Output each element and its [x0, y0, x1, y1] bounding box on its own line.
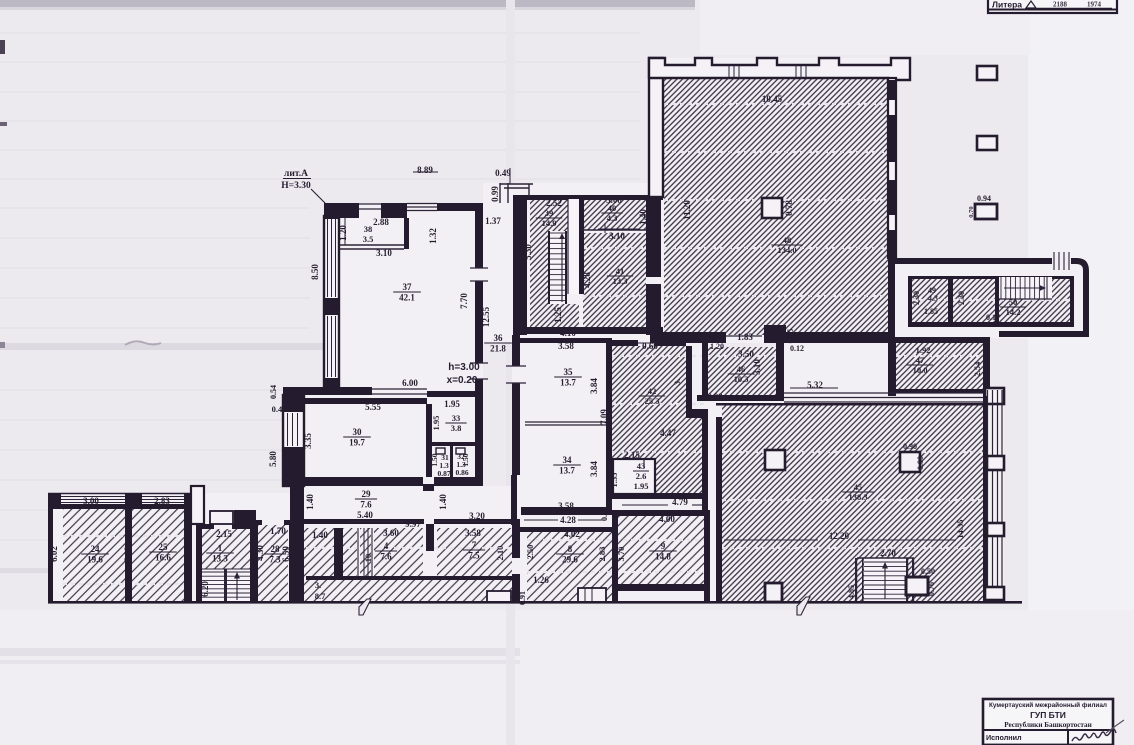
svg-text:19.6: 19.6 [87, 555, 103, 565]
svg-text:14.8: 14.8 [655, 552, 671, 562]
svg-text:0.49: 0.49 [495, 168, 511, 178]
svg-text:9: 9 [661, 541, 666, 551]
svg-text:7.09: 7.09 [599, 409, 609, 425]
svg-text:1.20: 1.20 [710, 342, 724, 351]
svg-text:h=3.00: h=3.00 [448, 362, 480, 373]
svg-text:Республики Башкортостан: Республики Башкортостан [1004, 721, 1092, 729]
svg-text:3.58: 3.58 [465, 528, 481, 538]
svg-text:0.78: 0.78 [784, 200, 794, 216]
svg-text:43: 43 [637, 461, 646, 471]
svg-text:39: 39 [545, 208, 554, 218]
svg-text:25.3: 25.3 [645, 396, 660, 406]
svg-text:8.7: 8.7 [315, 591, 326, 601]
svg-text:5.55: 5.55 [365, 402, 381, 412]
svg-text:0.50: 0.50 [921, 567, 935, 576]
svg-text:3.50: 3.50 [738, 349, 754, 359]
svg-text:4.28: 4.28 [582, 272, 592, 288]
svg-text:40: 40 [608, 203, 617, 213]
svg-text:3.5: 3.5 [363, 234, 374, 244]
svg-text:36: 36 [494, 333, 504, 343]
svg-text:4.3: 4.3 [928, 294, 938, 303]
svg-text:2.6: 2.6 [636, 471, 647, 481]
svg-text:3.58: 3.58 [558, 501, 574, 511]
svg-text:13.7: 13.7 [560, 378, 576, 388]
svg-text:Исполнил: Исполнил [986, 733, 1022, 742]
svg-text:25: 25 [159, 542, 169, 552]
svg-text:0.76: 0.76 [927, 582, 936, 596]
svg-text:0.99: 0.99 [490, 186, 500, 202]
svg-text:134.0: 134.0 [777, 245, 796, 255]
svg-text:3.8: 3.8 [451, 423, 462, 433]
svg-text:3.60: 3.60 [383, 528, 399, 538]
svg-text:42: 42 [648, 386, 657, 396]
svg-text:21.8: 21.8 [490, 344, 506, 354]
svg-text:2.54: 2.54 [972, 361, 982, 377]
svg-text:46: 46 [737, 364, 746, 374]
svg-text:3.10: 3.10 [752, 359, 762, 375]
svg-text:1.95: 1.95 [634, 481, 649, 491]
svg-text:3.10: 3.10 [376, 248, 392, 258]
svg-text:16.6: 16.6 [155, 553, 171, 563]
svg-text:34: 34 [563, 455, 573, 465]
svg-text:7.5: 7.5 [468, 551, 480, 561]
svg-text:33: 33 [452, 413, 461, 423]
svg-text:1.20: 1.20 [338, 225, 348, 241]
svg-text:5.40: 5.40 [357, 510, 373, 520]
svg-text:3.84: 3.84 [589, 378, 599, 394]
svg-text:5.83: 5.83 [123, 546, 133, 562]
svg-text:0.70: 0.70 [968, 206, 975, 217]
svg-text:1.32: 1.32 [428, 228, 438, 244]
svg-text:6.00: 6.00 [402, 378, 418, 388]
svg-text:7.70: 7.70 [459, 293, 469, 309]
svg-text:10.0: 10.0 [913, 365, 928, 375]
svg-text:7.6: 7.6 [360, 500, 372, 510]
svg-text:14.2: 14.2 [1006, 307, 1021, 317]
svg-text:7: 7 [472, 540, 477, 550]
svg-text:1.83: 1.83 [737, 332, 753, 342]
svg-text:4.10: 4.10 [560, 328, 576, 338]
svg-text:3.10: 3.10 [609, 231, 625, 241]
svg-text:6.59: 6.59 [281, 546, 291, 562]
svg-text:1: 1 [218, 543, 223, 553]
svg-text:0.68: 0.68 [289, 511, 298, 525]
svg-text:8.89: 8.89 [417, 165, 433, 175]
svg-text:4.3: 4.3 [607, 213, 618, 223]
svg-text:8.50: 8.50 [310, 264, 320, 280]
svg-text:48: 48 [783, 235, 792, 245]
svg-text:1.92: 1.92 [916, 345, 931, 355]
svg-text:35: 35 [564, 367, 574, 377]
svg-text:1974: 1974 [1087, 1, 1102, 9]
svg-text:0.40: 0.40 [272, 404, 287, 414]
svg-text:1.40: 1.40 [312, 530, 328, 540]
svg-text:37: 37 [403, 282, 413, 292]
svg-text:24: 24 [91, 544, 101, 554]
svg-text:Кумертауский межрайонный филиа: Кумертауский межрайонный филиал [989, 701, 1107, 709]
svg-text:0.98: 0.98 [708, 391, 723, 401]
svg-text:3.20: 3.20 [469, 511, 485, 521]
svg-text:0.17: 0.17 [986, 313, 1000, 322]
svg-text:12.55: 12.55 [481, 306, 491, 327]
svg-text:4.47: 4.47 [660, 428, 676, 438]
svg-text:2.15: 2.15 [216, 529, 232, 539]
svg-text:13.7: 13.7 [559, 466, 575, 476]
svg-text:7.6: 7.6 [380, 552, 392, 562]
svg-text:x=0.20: x=0.20 [447, 375, 478, 386]
svg-text:13.3: 13.3 [613, 276, 628, 286]
svg-text:17: 17 [684, 377, 694, 386]
svg-text:7.3: 7.3 [269, 555, 281, 565]
svg-text:2.30: 2.30 [912, 291, 921, 305]
svg-text:19.7: 19.7 [349, 438, 365, 448]
svg-text:11.20: 11.20 [682, 200, 692, 220]
svg-text:4.28: 4.28 [560, 515, 576, 525]
svg-text:4.79: 4.79 [672, 497, 688, 507]
svg-text:9.97: 9.97 [405, 519, 421, 529]
svg-text:14.35: 14.35 [955, 519, 965, 538]
svg-text:13.3: 13.3 [212, 554, 228, 564]
svg-text:1.95: 1.95 [431, 416, 441, 431]
svg-text:5.32: 5.32 [807, 380, 823, 390]
svg-text:Н=3.30: Н=3.30 [281, 181, 311, 191]
svg-text:1.37: 1.37 [485, 216, 501, 226]
svg-text:3.58: 3.58 [558, 341, 574, 351]
svg-text:2.10: 2.10 [495, 546, 505, 561]
svg-text:0.87: 0.87 [437, 469, 450, 478]
svg-text:ГУП БТИ: ГУП БТИ [1030, 710, 1066, 720]
svg-text:45: 45 [854, 482, 863, 492]
svg-text:47: 47 [916, 355, 925, 365]
svg-text:3.84: 3.84 [589, 461, 599, 477]
svg-text:0.73: 0.73 [600, 507, 609, 521]
svg-text:4.85: 4.85 [847, 585, 856, 599]
svg-text:38: 38 [364, 224, 373, 234]
svg-text:1.40: 1.40 [638, 209, 648, 225]
svg-text:28: 28 [271, 544, 281, 554]
svg-text:0.12: 0.12 [790, 344, 804, 353]
svg-text:12.20: 12.20 [829, 531, 850, 541]
svg-text:10: 10 [363, 554, 373, 563]
svg-text:3.: 3. [672, 379, 682, 385]
svg-text:10.45: 10.45 [762, 94, 783, 104]
svg-text:лит.А: лит.А [284, 169, 308, 179]
svg-text:0.65: 0.65 [785, 329, 795, 344]
svg-text:2.50: 2.50 [525, 545, 535, 560]
svg-text:8: 8 [568, 544, 573, 554]
svg-text:4: 4 [384, 541, 389, 551]
svg-text:1.26: 1.26 [533, 575, 549, 585]
svg-text:4.00: 4.00 [659, 514, 675, 524]
svg-text:5.30: 5.30 [523, 244, 533, 260]
svg-text:2.70: 2.70 [880, 548, 896, 558]
svg-text:1.25: 1.25 [553, 307, 563, 323]
svg-text:1.35: 1.35 [609, 473, 619, 488]
svg-text:42.1: 42.1 [399, 293, 415, 303]
svg-text:2.52: 2.52 [546, 198, 562, 208]
svg-text:2.83: 2.83 [154, 496, 170, 506]
svg-text:138.3: 138.3 [848, 492, 867, 502]
svg-text:1.40: 1.40 [438, 494, 448, 510]
svg-text:2.83: 2.83 [597, 547, 607, 562]
svg-text:3.35: 3.35 [303, 433, 313, 449]
svg-text:50: 50 [1009, 297, 1018, 307]
svg-text:2.30: 2.30 [957, 291, 966, 305]
svg-text:10.3: 10.3 [734, 374, 749, 384]
svg-text:6.20: 6.20 [200, 581, 210, 597]
svg-text:1.50: 1.50 [430, 453, 439, 466]
svg-text:2.15: 2.15 [624, 450, 640, 460]
svg-text:0.94: 0.94 [977, 194, 991, 203]
svg-text:0.54: 0.54 [269, 385, 278, 399]
svg-text:5.80: 5.80 [268, 451, 278, 467]
svg-text:Литера: Литера [992, 0, 1022, 10]
svg-text:3.00: 3.00 [83, 496, 99, 506]
svg-text:2188: 2188 [1053, 1, 1068, 9]
svg-text:0.80: 0.80 [916, 456, 925, 470]
svg-text:1.95: 1.95 [444, 399, 460, 409]
svg-text:0.60: 0.60 [642, 341, 658, 351]
svg-text:1.40: 1.40 [305, 494, 315, 510]
svg-text:4.02: 4.02 [564, 529, 580, 539]
svg-text:14.9: 14.9 [542, 218, 557, 228]
svg-text:3.70: 3.70 [616, 547, 626, 562]
svg-text:29: 29 [362, 489, 372, 499]
svg-text:1.70: 1.70 [270, 526, 286, 536]
svg-text:2.88: 2.88 [373, 217, 389, 227]
svg-text:0.86: 0.86 [455, 468, 468, 477]
svg-text:41: 41 [616, 266, 625, 276]
svg-text:4.30: 4.30 [255, 545, 265, 561]
svg-text:30: 30 [353, 427, 363, 437]
svg-text:29.6: 29.6 [562, 555, 578, 565]
svg-text:3.: 3. [315, 580, 321, 590]
svg-text:0.90: 0.90 [903, 442, 917, 451]
svg-text:1.85: 1.85 [924, 307, 938, 316]
svg-text:6.02: 6.02 [49, 546, 59, 562]
svg-text:0.91: 0.91 [518, 591, 527, 605]
